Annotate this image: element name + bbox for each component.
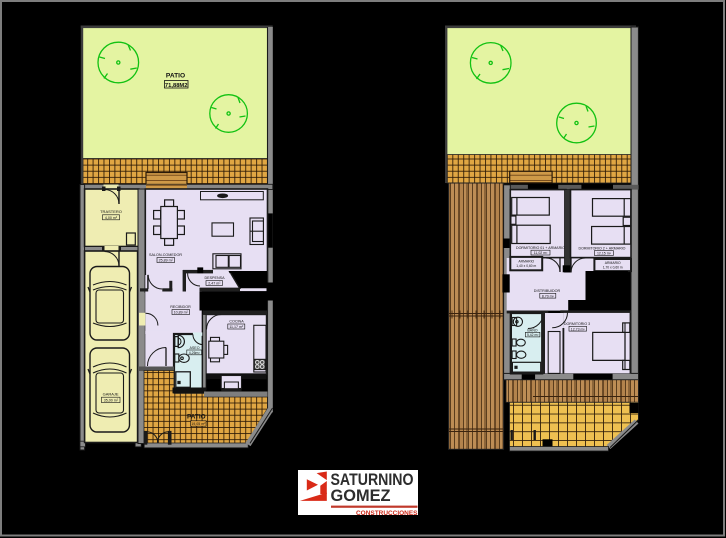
svg-text:PATIO: PATIO xyxy=(187,414,206,421)
svg-text:CONSTRUCCIONES: CONSTRUCCIONES xyxy=(356,510,418,517)
svg-text:4,26m²: 4,26m² xyxy=(189,351,201,355)
svg-text:2,47 m²: 2,47 m² xyxy=(208,282,221,286)
svg-text:DISTRIBUIDOR: DISTRIBUIDOR xyxy=(534,289,561,293)
svg-text:11,02 m²: 11,02 m² xyxy=(534,251,548,255)
svg-text:GARAJE: GARAJE xyxy=(103,392,119,397)
svg-text:ARMARIO: ARMARIO xyxy=(605,261,621,265)
svg-text:RECIBIDOR: RECIBIDOR xyxy=(170,305,191,309)
svg-text:10,89 m²: 10,89 m² xyxy=(174,311,189,315)
svg-text:11,17 m²: 11,17 m² xyxy=(229,325,244,329)
svg-text:DORMITORIO 01 + ARMARIO: DORMITORIO 01 + ARMARIO xyxy=(516,246,565,250)
svg-text:BAÑO: BAÑO xyxy=(527,327,537,332)
svg-text:1,70 x 0,60 m: 1,70 x 0,60 m xyxy=(603,266,623,270)
svg-text:4,00 m²: 4,00 m² xyxy=(105,216,118,220)
svg-text:PATIO: PATIO xyxy=(166,73,185,80)
svg-text:71,88M2: 71,88M2 xyxy=(165,83,188,89)
svg-text:COCINA: COCINA xyxy=(229,320,244,324)
svg-text:35,00 m²: 35,00 m² xyxy=(104,399,119,403)
svg-text:12,73 m²: 12,73 m² xyxy=(571,327,586,331)
svg-text:SALON-COMEDOR: SALON-COMEDOR xyxy=(149,253,182,257)
svg-text:GOMEZ: GOMEZ xyxy=(331,487,391,505)
svg-text:TRASTERO: TRASTERO xyxy=(100,209,122,214)
svg-text:1,40 x 0,60 m: 1,40 x 0,60 m xyxy=(516,264,536,268)
svg-text:12,15 m²: 12,15 m² xyxy=(597,252,612,256)
svg-text:8,70 m²: 8,70 m² xyxy=(542,294,555,298)
svg-text:DORMITORIO 2 + ARMARIO: DORMITORIO 2 + ARMARIO xyxy=(579,247,626,251)
svg-text:5,42 m²: 5,42 m² xyxy=(527,333,539,337)
svg-text:DESPENSA: DESPENSA xyxy=(204,276,225,280)
svg-text:25,89 m²: 25,89 m² xyxy=(159,259,174,263)
svg-text:ASEO: ASEO xyxy=(190,346,200,350)
svg-text:ARMARIO: ARMARIO xyxy=(518,259,534,263)
svg-text:DORMITORIO 3: DORMITORIO 3 xyxy=(564,322,590,326)
svg-text:19,05 m²: 19,05 m² xyxy=(191,422,206,426)
